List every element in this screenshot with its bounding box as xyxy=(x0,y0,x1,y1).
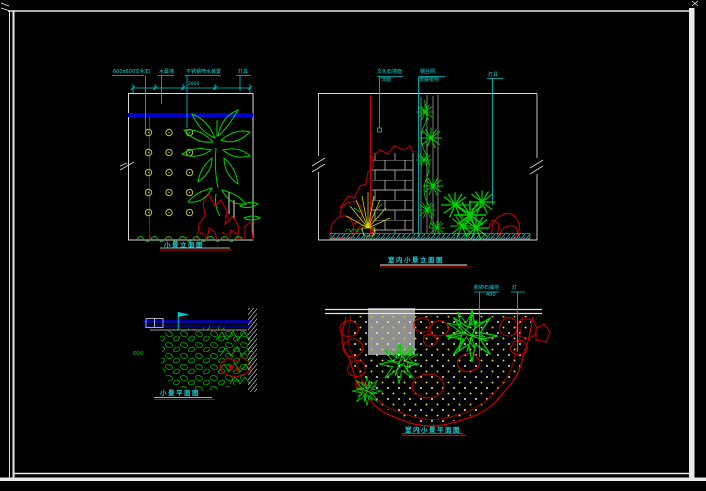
panel-title-plan-indoor-scene: 室内小景平面图 xyxy=(405,427,461,434)
panel-title-plan-small-scene: 小景平面图 xyxy=(160,390,200,397)
trunk-lines xyxy=(229,192,234,218)
corner-scribble-icon xyxy=(1,3,10,11)
plant-foliage xyxy=(182,110,260,220)
brick-wall xyxy=(372,153,413,233)
pebble-size-note: Ø20 xyxy=(133,352,143,357)
rockery xyxy=(197,194,253,240)
leader-label: 600x600文化石 xyxy=(113,70,150,75)
dimension-lines xyxy=(112,76,252,133)
leader-label: 文化石墙面 xyxy=(377,70,402,75)
leader-label: 爬藤植物 xyxy=(419,78,439,83)
wall-double-line xyxy=(325,310,542,314)
leader-label: 鹅卵石铺地 xyxy=(474,286,499,291)
paving-hatch-strip xyxy=(330,234,530,240)
leader-label: 不锈钢喷水装置 xyxy=(186,70,221,75)
shrub-foliage xyxy=(441,190,495,240)
vine-foliage xyxy=(416,104,445,235)
wall-section-hatch xyxy=(248,308,257,392)
cad-drawing-canvas xyxy=(0,0,706,491)
panel-title-elevation-small-scene: 小景立面图 xyxy=(164,242,204,249)
panel-plan-indoor-scene xyxy=(325,292,550,436)
panel-title-elevation-indoor-scene: 室内小景立面图 xyxy=(388,257,444,264)
panel-elevation-small-scene xyxy=(112,76,260,251)
sheet-border xyxy=(0,1,706,481)
water-spout-grid xyxy=(145,129,192,215)
leader-label: 钢丝网 xyxy=(420,70,435,75)
leader-label: 水幕墙 xyxy=(159,70,174,75)
leader-label: 饰面 xyxy=(381,78,391,83)
leader-label: 灯 xyxy=(512,286,517,291)
panel-elevation-indoor-scene xyxy=(312,77,543,268)
paving-dot-field xyxy=(348,314,534,426)
leader-label: 400 xyxy=(486,293,496,298)
break-line-left xyxy=(312,94,325,241)
leader-label: 灯具 xyxy=(238,70,248,75)
break-mark-icon xyxy=(120,162,134,170)
break-line-right xyxy=(530,94,543,241)
corner-cross-icon xyxy=(692,1,698,6)
cad-sheet: 600x600文化石 水幕墙 不锈钢喷水装置 灯具 2800 小景立面图 文化石… xyxy=(0,0,706,491)
leader-label: 灯具 xyxy=(488,73,498,78)
dimension-text: 2800 xyxy=(188,83,199,88)
panel-plan-small-scene xyxy=(143,308,257,400)
